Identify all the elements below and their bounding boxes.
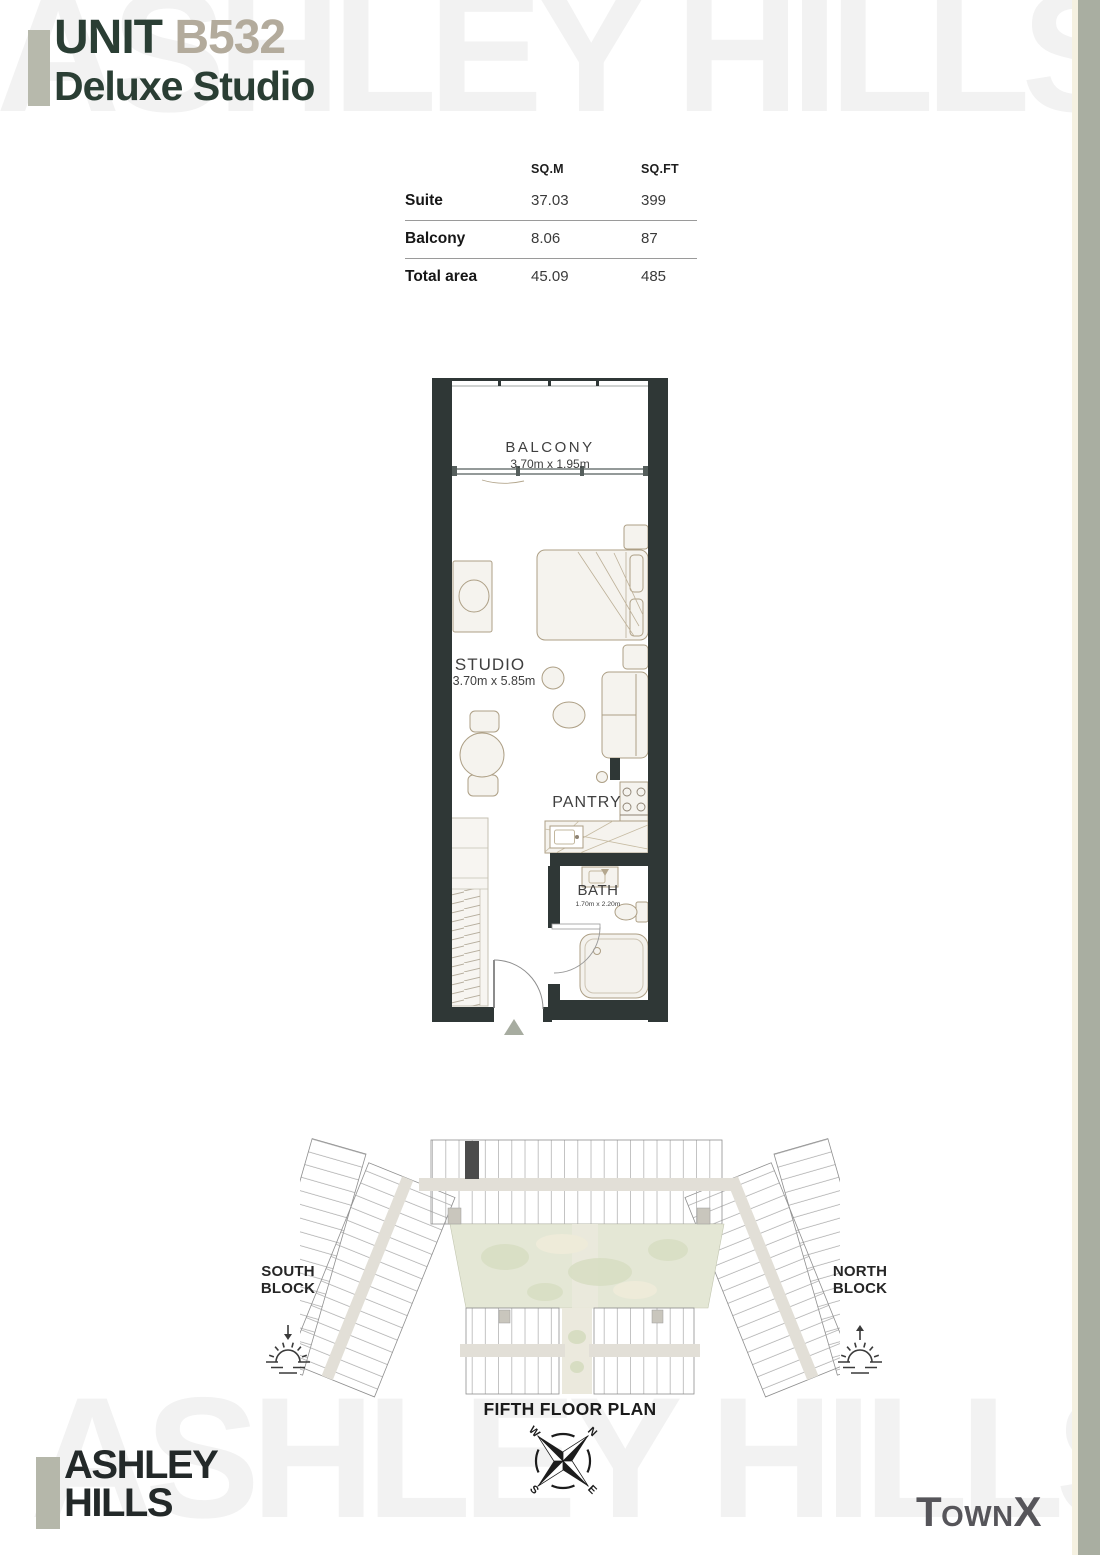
unit-floor-plan: BALCONY 3.70m x 1.95m STUDIO 3.70m x 5.8…: [430, 378, 670, 1046]
page-edge-bar: [1078, 0, 1100, 1555]
pantry-label: PANTRY: [552, 794, 621, 811]
north-block-label: NORTH BLOCK: [820, 1263, 900, 1298]
highlighted-unit: [465, 1141, 479, 1179]
row-sqft: 485: [641, 268, 697, 285]
wall-bottom-left: [432, 1007, 494, 1022]
kettle: [597, 772, 608, 783]
wall-bath-west-upper: [548, 866, 560, 928]
page-title: UNIT B532 Deluxe Studio: [54, 14, 314, 107]
row-label: Total area: [405, 268, 531, 286]
wall-right: [648, 378, 668, 1022]
brand-line1: ASHLEY: [64, 1446, 217, 1484]
dining-chair: [470, 711, 499, 732]
unit-type: Deluxe Studio: [54, 66, 314, 107]
balcony-dims: 3.70m x 1.95m: [510, 457, 589, 471]
sunset-icon: [253, 1322, 323, 1380]
bath-dims: 1.70m x 2.20m: [576, 901, 621, 908]
table-row-balcony: Balcony 8.06 87: [405, 221, 697, 259]
column-sqm: SQ.M: [531, 162, 641, 176]
desk-chair: [459, 580, 489, 612]
brand-logo: ASHLEY HILLS: [64, 1446, 217, 1522]
brochure-page: ASHLEY HILLS ASHLEY HILLS UNIT B532 Delu…: [0, 0, 1100, 1555]
row-sqft: 87: [641, 230, 697, 247]
row-label: Suite: [405, 192, 531, 210]
compass-s: S: [527, 1483, 541, 1497]
compass-rose-icon: N E S W: [518, 1416, 608, 1506]
studio-dims: 3.70m x 5.85m: [453, 674, 536, 688]
faucet: [575, 835, 579, 839]
brand-line2: HILLS: [64, 1484, 217, 1522]
wall-bath-bottom: [548, 1000, 668, 1020]
south-block-label: SOUTH BLOCK: [248, 1263, 328, 1298]
pillow: [630, 599, 643, 636]
pillow: [630, 555, 643, 592]
row-label: Balcony: [405, 230, 531, 248]
courtyard: [450, 1224, 724, 1308]
dining-chair: [468, 775, 498, 796]
sunrise-icon: [825, 1322, 895, 1380]
unit-label: UNIT: [54, 11, 162, 64]
site-key-plan: [300, 1132, 840, 1424]
studio-label: STUDIO: [455, 655, 525, 674]
row-sqm: 45.09: [531, 268, 641, 285]
title-accent-bar: [28, 30, 50, 106]
toilet-tank: [636, 902, 648, 922]
top-corridor: [419, 1178, 734, 1191]
row-sqft: 399: [641, 192, 697, 209]
wall-pantry-stub: [610, 758, 620, 780]
row-sqm: 37.03: [531, 192, 641, 209]
shower: [580, 934, 648, 998]
bath-label: BATH: [578, 882, 619, 899]
coffee-table: [553, 702, 585, 728]
nightstand: [624, 525, 648, 549]
sofa-cushion: [623, 645, 648, 669]
dining-table: [460, 733, 504, 777]
unit-number: B532: [174, 11, 285, 64]
area-table-header: SQ.M SQ.FT: [405, 162, 697, 183]
area-table: SQ.M SQ.FT Suite 37.03 399 Balcony 8.06 …: [405, 162, 697, 296]
developer-logo: TOWNX: [916, 1488, 1041, 1536]
column-sqft: SQ.FT: [641, 162, 697, 176]
pouf: [542, 667, 564, 689]
wardrobe-hanging: [450, 889, 480, 1006]
brand-accent-bar: [36, 1457, 60, 1529]
wall-left: [432, 378, 452, 1022]
center-path: [562, 1308, 592, 1394]
row-sqm: 8.06: [531, 230, 641, 247]
balcony-label: BALCONY: [505, 439, 594, 456]
table-row-total: Total area 45.09 485: [405, 259, 697, 296]
wall-bath-top: [550, 853, 668, 866]
table-row-suite: Suite 37.03 399: [405, 183, 697, 221]
